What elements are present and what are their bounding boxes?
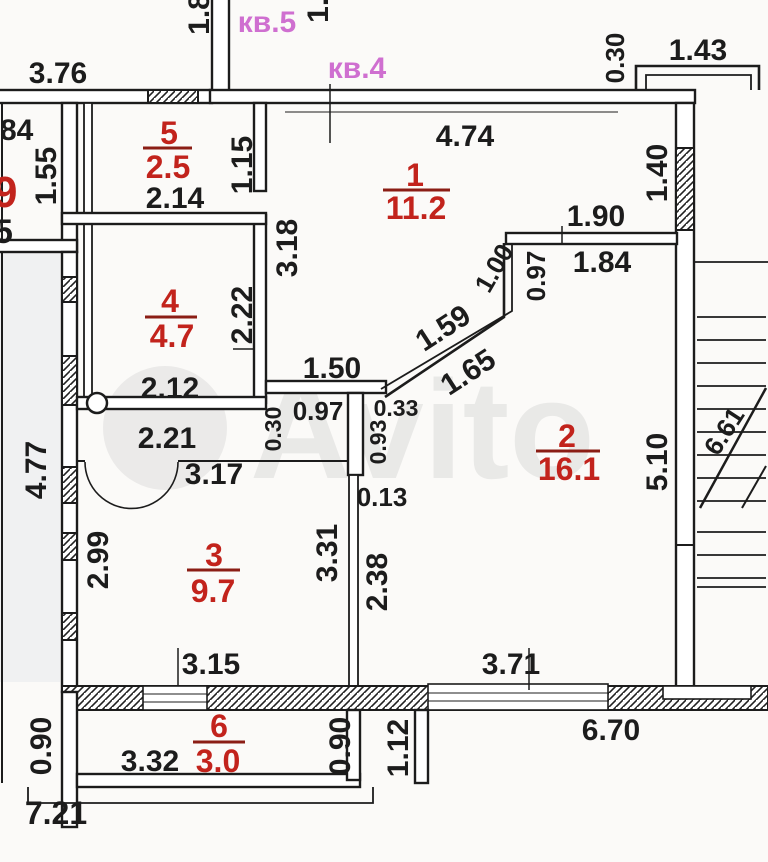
room6-number: 6 [210,708,228,744]
dim-room3-238: 2.38 [361,553,394,611]
wall-hatch [676,148,694,230]
dim-hall-221: 2.21 [138,422,196,455]
dim-room1-140: 1.40 [641,144,674,202]
dim-room6-090-left: 0.90 [25,717,58,775]
room5-area: 2.5 [146,149,190,185]
dim-neighbor-155: 1.55 [30,147,63,205]
dim-room1-318: 3.18 [271,219,304,277]
dim-left-477: 4.77 [20,441,53,499]
room2-area: 16.1 [538,451,600,487]
floor-plan: Avito [0,0,768,862]
dim-hall-097: 0.97 [293,396,344,426]
dim-room5-width: 2.14 [146,182,205,215]
room4-number: 4 [161,283,179,319]
floor-plan-page: Avito [0,0,768,862]
dim-room3-315: 3.15 [182,648,240,681]
dim-room1-097: 0.97 [521,251,551,302]
apartment-label-kv4: кв.4 [328,52,387,85]
dim-room1-184: 1.84 [573,246,632,279]
dim-neighbor-5: 5 [0,213,13,251]
room3-area: 9.7 [191,573,235,609]
dim-room4-width: 2.12 [141,372,199,405]
room1-area: 11.2 [386,190,447,226]
dim-hall-093: 0.93 [365,420,391,465]
room3-number: 3 [205,537,223,573]
dim-bottom-112: 1.12 [382,719,415,777]
dim-room5-115: 1.15 [226,136,259,194]
dim-hall-033: 0.33 [374,395,419,421]
room6-area: 3.0 [196,743,240,779]
dim-hall-013: 0.13 [357,482,408,512]
dim-top-18: 1.8 [183,0,216,35]
apartment-label-kv5: кв.5 [238,6,296,39]
dim-top-15: 1.5 [302,0,335,23]
dim-neighbor-84: 84 [0,114,34,147]
dim-top-width: 3.76 [29,57,87,90]
dim-room3-331: 3.31 [311,524,344,582]
dim-bottom-721: 7.21 [25,795,87,831]
dim-room4-222: 2.22 [226,286,259,344]
dim-hall-030: 0.30 [260,407,286,452]
door-hinge-circle [87,393,107,413]
room5-number: 5 [160,115,178,151]
dim-room1-top: 4.74 [436,120,495,153]
dim-room6-332: 3.32 [121,745,179,778]
dim-hall-317: 3.17 [185,458,243,491]
vent-hatch [148,90,198,103]
dim-room1-159: 1.59 [410,299,477,358]
room1-number: 1 [406,157,424,193]
neighbor-room-area: 9 [0,168,17,217]
dim-bottom-670: 6.70 [582,714,640,747]
dim-balcony-offset: 0.30 [600,33,630,84]
dim-room1-190: 1.90 [567,200,625,233]
neighbor-balcony [636,66,759,90]
dim-room6-090-right: 0.90 [324,717,357,775]
dim-hall-150: 1.50 [303,352,361,385]
dim-room2-371: 3.71 [482,648,540,681]
dim-balcony-width: 1.43 [669,34,727,67]
dim-room2-510: 5.10 [641,433,674,491]
room4-area: 4.7 [150,318,194,354]
dim-room3-299: 2.99 [82,531,115,589]
room2-number: 2 [558,418,576,454]
